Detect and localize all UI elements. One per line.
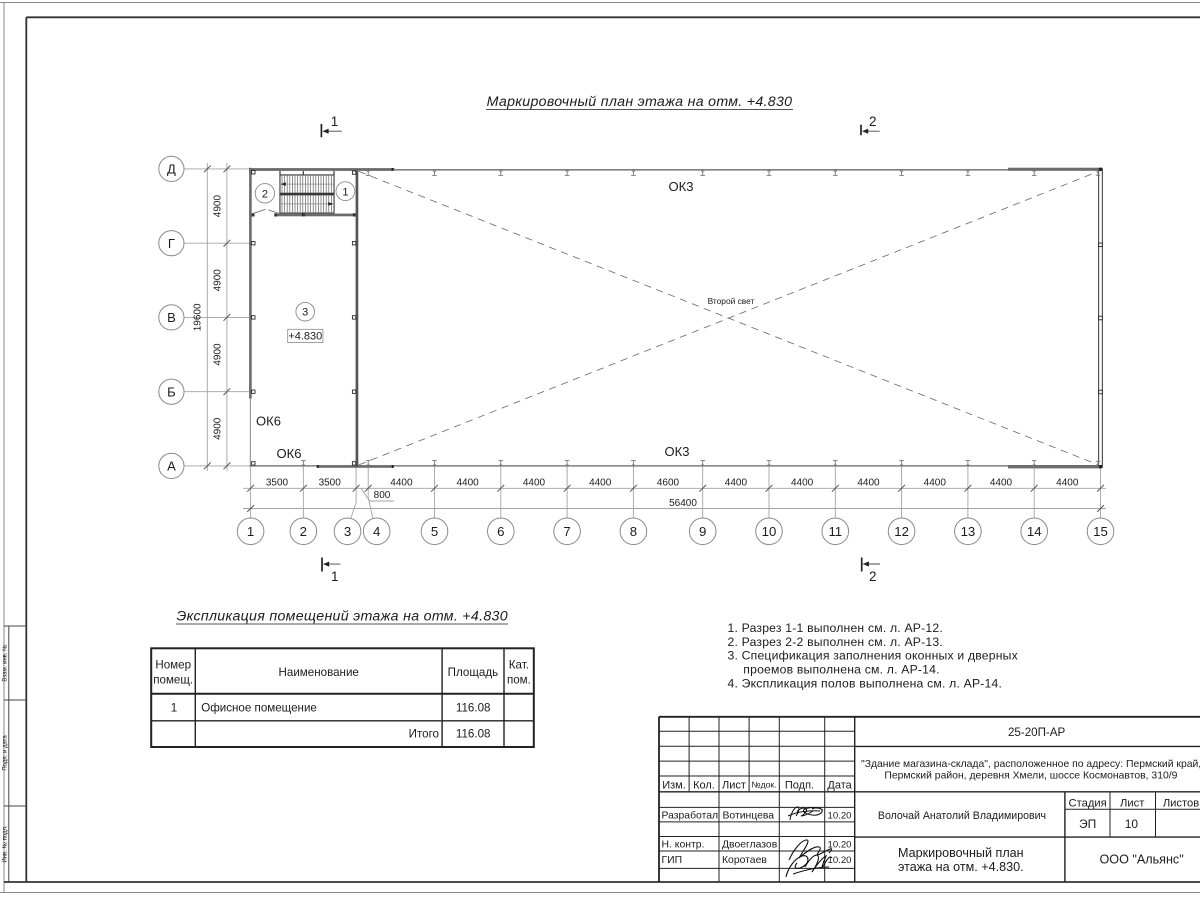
svg-text:ОК3: ОК3 [665, 444, 690, 459]
svg-text:Маркировочный план: Маркировочный план [898, 846, 1024, 860]
svg-text:4: 4 [373, 524, 380, 539]
svg-text:Экспликация помещений этажа на: Экспликация помещений этажа на отм. +4.8… [176, 608, 507, 624]
svg-text:№док.: №док. [751, 780, 776, 790]
svg-text:116.08: 116.08 [456, 728, 491, 741]
svg-text:Кат.: Кат. [509, 659, 529, 672]
svg-text:ОК3: ОК3 [669, 179, 694, 194]
svg-text:ООО "Альянс": ООО "Альянс" [1099, 852, 1183, 866]
svg-text:Кол.: Кол. [693, 779, 715, 791]
svg-text:Второй свет: Второй свет [708, 296, 755, 306]
svg-text:Лист: Лист [722, 779, 746, 791]
svg-text:3: 3 [344, 524, 351, 539]
svg-text:10.20: 10.20 [827, 810, 851, 821]
svg-text:А: А [167, 459, 176, 474]
svg-text:8: 8 [630, 524, 637, 539]
svg-text:4900: 4900 [213, 343, 224, 366]
svg-text:1: 1 [331, 569, 339, 584]
svg-text:9: 9 [699, 524, 706, 539]
svg-text:12: 12 [894, 524, 909, 539]
svg-text:Пермский район, деревня Хмели,: Пермский район, деревня Хмели, шоссе Кос… [884, 770, 1177, 781]
svg-text:56400: 56400 [669, 498, 697, 509]
svg-text:Разработал: Разработал [662, 809, 719, 821]
svg-text:4400: 4400 [857, 478, 880, 489]
svg-text:4400: 4400 [791, 478, 814, 489]
svg-text:4400: 4400 [990, 478, 1013, 489]
svg-text:ОК6: ОК6 [277, 446, 302, 461]
svg-text:4900: 4900 [213, 269, 224, 292]
svg-text:11: 11 [828, 524, 842, 539]
svg-text:Стадия: Стадия [1069, 798, 1107, 810]
svg-text:3: 3 [302, 307, 308, 319]
svg-text:800: 800 [374, 490, 391, 501]
svg-text:Дата: Дата [827, 779, 852, 791]
svg-text:Инв. № подл.: Инв. № подл. [2, 825, 9, 863]
svg-text:116.08: 116.08 [456, 702, 491, 715]
svg-text:2: 2 [300, 524, 307, 539]
svg-text:4400: 4400 [1056, 478, 1079, 489]
svg-text:Площадь: Площадь [448, 666, 498, 679]
svg-text:ОК6: ОК6 [256, 413, 281, 428]
svg-text:1: 1 [342, 186, 348, 198]
svg-text:19600: 19600 [193, 303, 204, 331]
svg-text:4. Экспликация полов выполнена: 4. Экспликация полов выполнена см. л. АР… [728, 676, 1003, 690]
svg-text:"Здание магазина-склада", расп: "Здание магазина-склада", расположенное … [861, 759, 1200, 770]
svg-text:10: 10 [762, 524, 777, 539]
svg-text:7: 7 [563, 524, 570, 539]
svg-text:пом.: пом. [507, 674, 531, 687]
svg-text:25-20П-АР: 25-20П-АР [1008, 726, 1066, 739]
svg-text:Подп.: Подп. [785, 779, 814, 791]
svg-text:4900: 4900 [213, 417, 224, 440]
svg-text:4400: 4400 [390, 478, 413, 489]
svg-text:3. Спецификация заполнения око: 3. Спецификация заполнения оконных и две… [728, 649, 1018, 663]
svg-text:Наименование: Наименование [279, 666, 359, 679]
svg-text:14: 14 [1027, 524, 1042, 539]
svg-text:ГИП: ГИП [662, 855, 683, 866]
svg-text:2: 2 [262, 188, 268, 200]
svg-text:этажа на отм. +4.830.: этажа на отм. +4.830. [898, 860, 1024, 874]
svg-text:4400: 4400 [456, 478, 479, 489]
svg-text:Коротаев: Коротаев [722, 855, 767, 866]
svg-text:4400: 4400 [523, 478, 546, 489]
svg-text:Д: Д [167, 162, 176, 177]
svg-text:2. Разрез 2-2 выполнен см. л.: 2. Разрез 2-2 выполнен см. л. АР-13. [728, 635, 943, 649]
svg-text:Маркировочный план этажа на от: Маркировочный план этажа на отм. +4.830 [487, 94, 793, 110]
svg-text:15: 15 [1093, 524, 1108, 539]
svg-text:1. Разрез 1-1 выполнен см. л.: 1. Разрез 1-1 выполнен см. л. АР-12. [728, 621, 943, 635]
svg-text:Номер: Номер [155, 659, 191, 672]
svg-text:проемов выполнена см. л. АР-14: проемов выполнена см. л. АР-14. [743, 663, 939, 677]
svg-text:1: 1 [331, 114, 339, 129]
svg-text:+4.830: +4.830 [288, 331, 322, 343]
svg-text:помещ.: помещ. [153, 674, 193, 687]
svg-text:Взам. инв. №: Взам. инв. № [2, 644, 9, 681]
svg-text:Б: Б [167, 384, 176, 399]
svg-text:Н. контр.: Н. контр. [662, 840, 705, 851]
svg-text:Волочай Анатолий Владимирович: Волочай Анатолий Владимирович [878, 810, 1046, 822]
svg-text:13: 13 [961, 524, 976, 539]
svg-text:Изм.: Изм. [662, 779, 686, 791]
svg-text:5: 5 [431, 524, 438, 539]
svg-text:4600: 4600 [657, 478, 680, 489]
svg-text:2: 2 [869, 569, 877, 584]
svg-text:Г: Г [168, 236, 175, 251]
svg-text:4400: 4400 [589, 478, 612, 489]
svg-text:6: 6 [497, 524, 504, 539]
svg-text:4900: 4900 [213, 195, 224, 218]
svg-text:1: 1 [247, 524, 254, 539]
svg-text:3500: 3500 [266, 478, 289, 489]
svg-text:Лист: Лист [1120, 798, 1144, 810]
svg-text:В: В [167, 310, 176, 325]
svg-text:Офисное помещение: Офисное помещение [201, 702, 317, 715]
svg-text:Вотинцева: Вотинцева [723, 810, 775, 821]
svg-text:10: 10 [1125, 817, 1139, 831]
svg-text:Двоеглазов: Двоеглазов [722, 840, 778, 851]
svg-text:1: 1 [171, 702, 177, 715]
svg-text:ЭП: ЭП [1079, 817, 1096, 831]
svg-text:2: 2 [869, 114, 877, 129]
svg-text:3500: 3500 [319, 478, 342, 489]
svg-text:Итого: Итого [409, 728, 439, 741]
svg-text:4400: 4400 [725, 478, 748, 489]
svg-text:Подп. и дата: Подп. и дата [3, 735, 9, 771]
svg-text:4400: 4400 [924, 478, 947, 489]
svg-text:Листов: Листов [1163, 798, 1199, 810]
